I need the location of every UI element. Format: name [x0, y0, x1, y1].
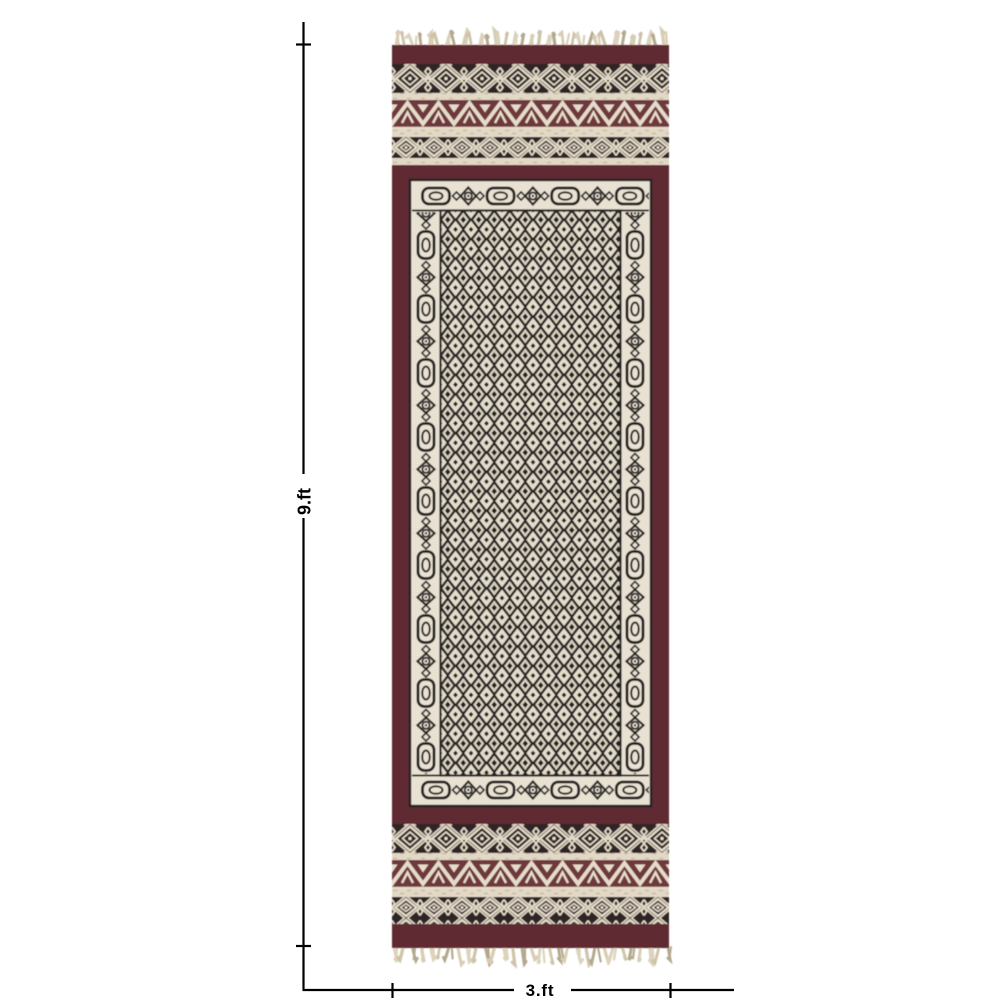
svg-text:3.ft: 3.ft	[526, 981, 555, 1000]
svg-text:9.ft: 9.ft	[295, 488, 315, 515]
